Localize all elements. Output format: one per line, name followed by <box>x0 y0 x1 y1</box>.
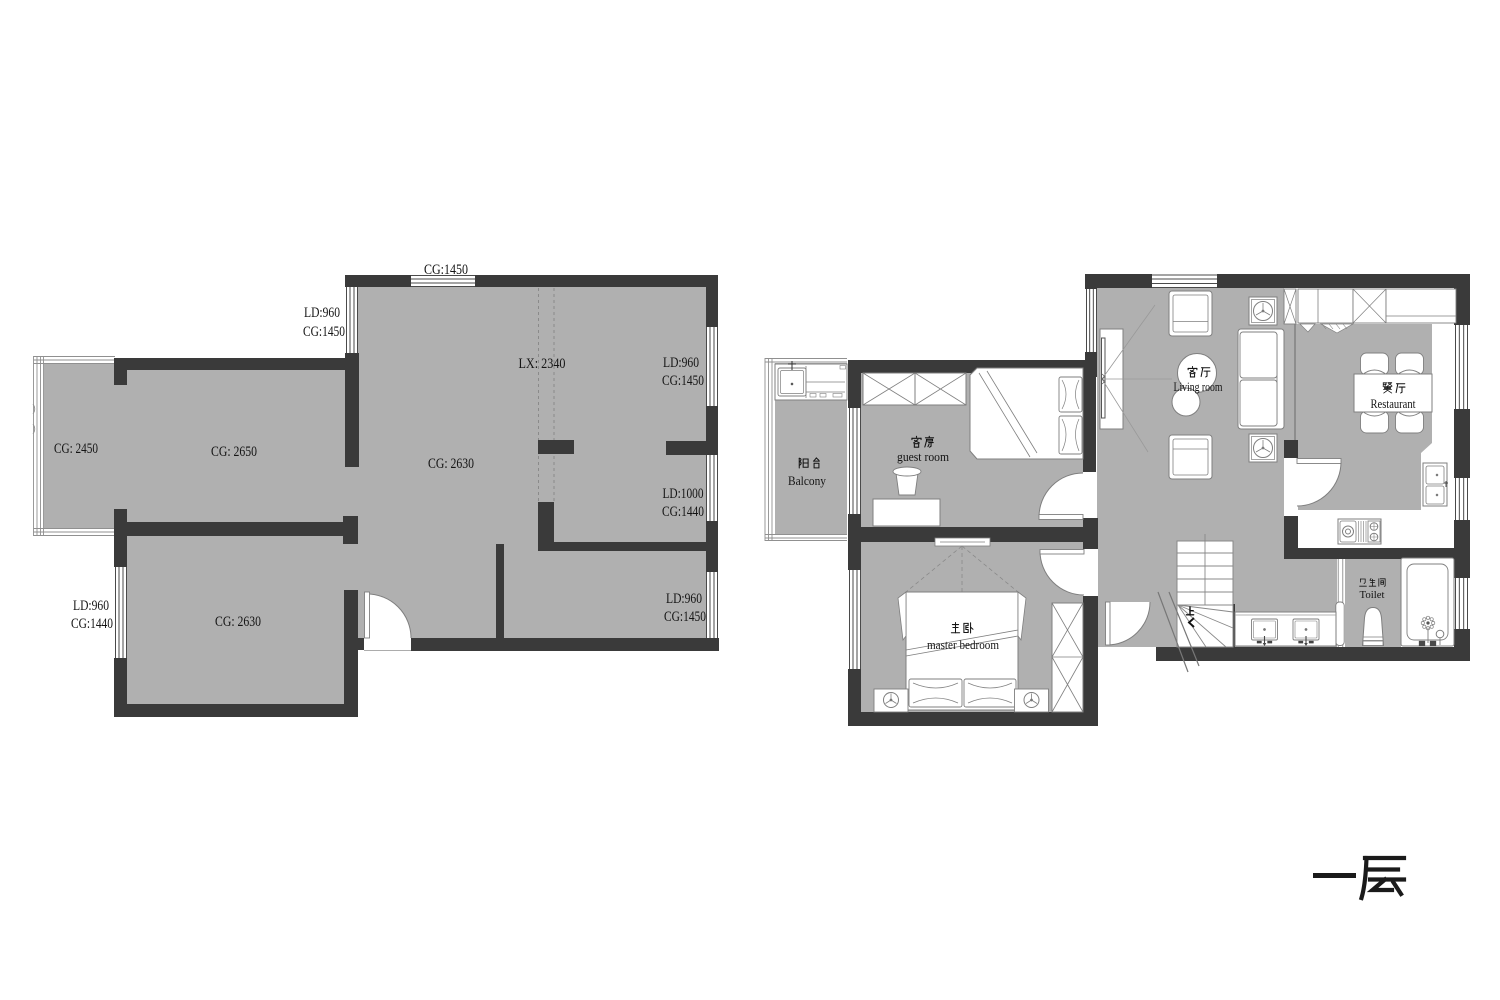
svg-text:guest room: guest room <box>897 449 949 464</box>
svg-text:LD:1000: LD:1000 <box>663 486 704 502</box>
svg-text:LD:960: LD:960 <box>73 598 109 614</box>
svg-text:LX: 2340: LX: 2340 <box>519 356 566 372</box>
svg-text:master bedroom: master bedroom <box>927 637 999 652</box>
svg-text:LD:960: LD:960 <box>666 591 702 607</box>
svg-text:Living room: Living room <box>1174 379 1223 394</box>
svg-text:Toilet: Toilet <box>1360 589 1385 601</box>
svg-text:CG:1450: CG:1450 <box>303 324 345 340</box>
svg-text:CG:1450: CG:1450 <box>424 262 468 278</box>
svg-text:CG:1450: CG:1450 <box>664 609 706 625</box>
svg-text:CG:1440: CG:1440 <box>662 504 704 520</box>
svg-text:CG: 2630: CG: 2630 <box>428 456 474 472</box>
svg-text:CG: 2650: CG: 2650 <box>211 444 257 460</box>
svg-text:CG:1440: CG:1440 <box>71 616 113 632</box>
svg-text:Restaurant: Restaurant <box>1371 396 1416 411</box>
svg-text:LD:960: LD:960 <box>304 305 340 321</box>
svg-text:Balcony: Balcony <box>788 473 826 488</box>
svg-text:CG: 2450: CG: 2450 <box>54 441 98 457</box>
svg-text:CG:1450: CG:1450 <box>662 373 704 389</box>
svg-text:LD:960: LD:960 <box>663 355 699 371</box>
svg-text:CG: 2630: CG: 2630 <box>215 614 261 630</box>
